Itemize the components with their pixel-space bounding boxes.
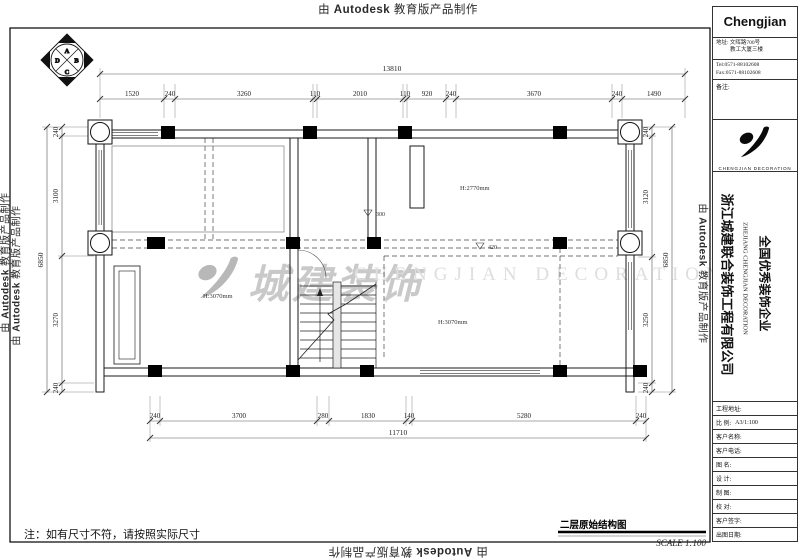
dim-label: 110 (310, 90, 321, 98)
scale-label: SCALE 1:100 (656, 538, 706, 548)
dim-label: 240 (165, 90, 176, 98)
dim-left-total: 6850 (36, 252, 45, 267)
chengjian-logo-icon (738, 126, 772, 160)
dimension-ticks (44, 71, 688, 441)
table-row: 工程地址: (713, 401, 797, 415)
company-full-names: 浙江城建联合装饰工程有限公司 ZHEJIANG CHENGJIAN DECORA… (713, 171, 797, 401)
drawing-sheet: 城建装饰 CHENGJIAN DECORATION A B C D 13810 (0, 0, 800, 560)
walls (96, 122, 640, 392)
dim-label: 240 (52, 126, 60, 137)
fax-line: Fax:0571-88102608 (716, 70, 797, 78)
dim-top-total: 13810 (383, 64, 402, 73)
dim-label: 3670 (527, 90, 542, 98)
table-row: 客户名称: (713, 429, 797, 443)
extension-lines (42, 68, 685, 442)
company-address: 地址: 文晖路700号 教工大厦三楼 (713, 38, 797, 61)
level-marker-right: 420 (476, 243, 497, 251)
remark-section: 备注: (713, 80, 797, 121)
dim-label: 3700 (232, 412, 247, 420)
dim-label: 1830 (361, 412, 376, 420)
ceiling-height-label: H:2770mm (460, 185, 490, 192)
structural-columns (147, 126, 647, 377)
table-row: 出图日期: (713, 527, 797, 541)
table-row: 图 名: (713, 457, 797, 471)
dim-label: 240 (636, 412, 647, 420)
drawing-title-group: 二层原始结构图 SCALE 1:100 (558, 519, 706, 548)
dim-label: 140 (404, 412, 415, 420)
dim-label: 240 (150, 412, 161, 420)
compass-letter-b: B (74, 58, 79, 65)
stair-direction-arrow-icon (317, 288, 323, 296)
sheet-border (10, 28, 710, 542)
dim-label: 3250 (642, 313, 650, 328)
dim-bottom-total: 11710 (389, 428, 408, 437)
compass-letter-d: D (55, 58, 60, 65)
round-columns (88, 120, 642, 255)
dim-label: 240 (642, 382, 650, 393)
ceiling-height-label: H:3070mm (203, 293, 233, 300)
compass-letter-a: A (65, 48, 70, 55)
dim-label: 280 (318, 412, 329, 420)
svg-text:420: 420 (488, 245, 497, 251)
staircase (298, 282, 376, 368)
dim-right-total: 6850 (661, 252, 670, 267)
ceiling-height-label: H:3070mm (438, 319, 468, 326)
remark-label: 备注: (716, 85, 730, 91)
floor-plan-svg: A B C D 13810 1520 240 3260 110 2010 110… (0, 0, 800, 560)
dim-label: 110 (400, 90, 411, 98)
company-phone: Tel:0571-88102608 Fax:0571-88102608 (713, 60, 797, 81)
table-row: 校 对: (713, 499, 797, 513)
dim-label: 240 (642, 126, 650, 137)
tel-line: Tel:0571-88102608 (716, 62, 797, 70)
dim-label: 240 (52, 382, 60, 393)
window-lines (99, 133, 631, 374)
table-row: 客户电话: (713, 443, 797, 457)
dim-label: 2010 (353, 90, 368, 98)
title-block: Chengjian 地址: 文晖路700号 教工大厦三楼 Tel:0571-88… (712, 6, 798, 542)
company-name-en: ZHEJIANG CHENGJIAN DECORATION (742, 167, 749, 391)
level-marker-mid: 300 (364, 210, 385, 218)
dim-label: 240 (446, 90, 457, 98)
dashed-beam-lines (104, 138, 626, 368)
compass-letter-c: C (65, 69, 70, 76)
company-honor: 全国优秀装饰企业 (757, 172, 774, 396)
door-swing (298, 250, 326, 278)
dim-label: 3120 (642, 190, 650, 205)
dim-label: 3100 (52, 189, 60, 204)
logo-section: CHENGJIAN DECORATION (713, 120, 797, 171)
dim-label: 240 (612, 90, 623, 98)
company-name-cn: 浙江城建联合装饰工程有限公司 (719, 173, 738, 397)
drawing-title: 二层原始结构图 (560, 519, 627, 531)
table-row: 制 图: (713, 485, 797, 499)
dimension-note: 注：如有尺寸不符，请按照实际尺寸 (24, 526, 200, 542)
dimension-lines (47, 74, 685, 438)
dim-label: 5280 (517, 412, 532, 420)
dim-label: 1490 (647, 90, 662, 98)
title-block-table: 工程地址: 比 例:A3/1:100 客户名称: 客户电话: 图 名: 设 计:… (713, 401, 797, 541)
interior-elevation-symbol: A B C D (41, 34, 93, 86)
table-row: 比 例:A3/1:100 (713, 415, 797, 429)
dim-label: 920 (422, 90, 433, 98)
company-short-name: Chengjian (713, 7, 797, 37)
dim-label: 3270 (52, 313, 60, 328)
dim-label: 1520 (125, 90, 140, 98)
table-row: 设 计: (713, 471, 797, 485)
table-row: 客户签字: (713, 513, 797, 527)
dim-label: 3260 (237, 90, 252, 98)
svg-text:300: 300 (376, 212, 385, 218)
